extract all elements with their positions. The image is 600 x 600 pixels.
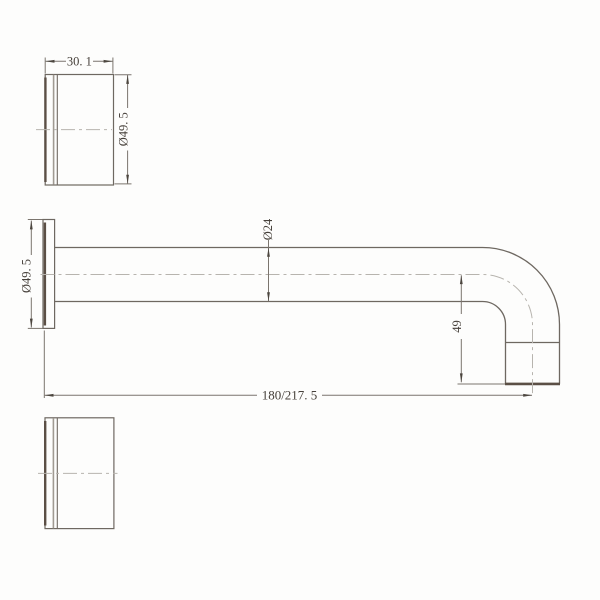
svg-text:Ø49. 5: Ø49. 5	[20, 259, 34, 293]
svg-text:180/217. 5: 180/217. 5	[262, 388, 318, 403]
svg-text:Ø49. 5: Ø49. 5	[116, 112, 130, 146]
svg-text:Ø24: Ø24	[261, 218, 275, 240]
svg-text:49: 49	[450, 320, 464, 333]
svg-text:30. 1: 30. 1	[67, 55, 92, 69]
